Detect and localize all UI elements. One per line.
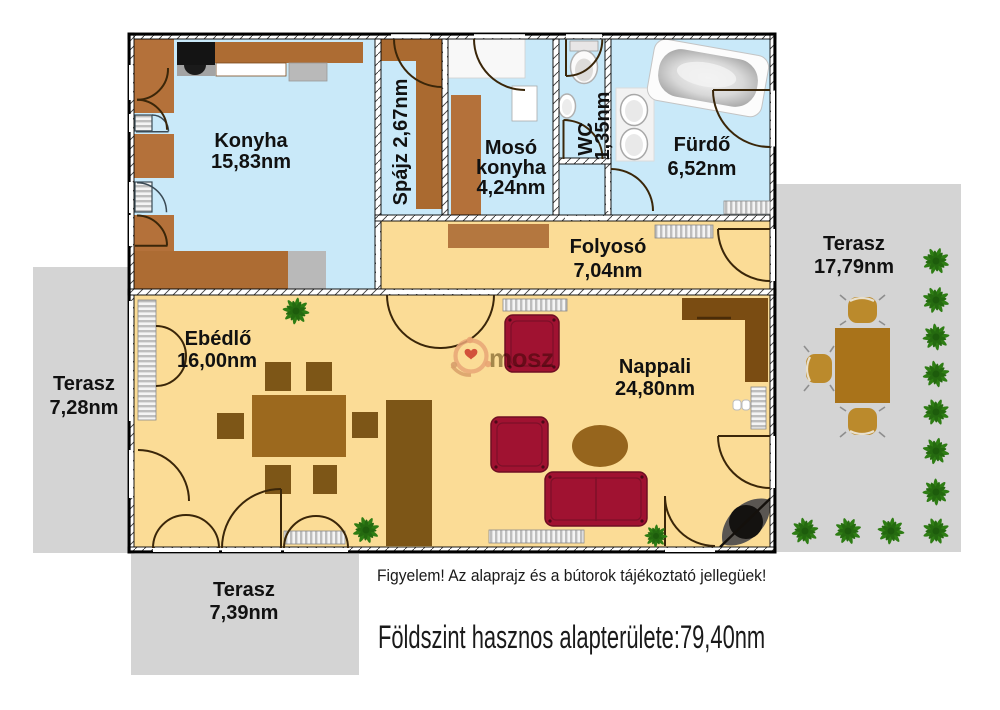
svg-text:7,39nm: 7,39nm <box>210 602 279 624</box>
svg-text:Fürdő: Fürdő <box>674 134 731 156</box>
svg-text:Terasz: Terasz <box>823 233 885 255</box>
svg-text:Terasz: Terasz <box>53 373 115 395</box>
svg-text:1,35nm: 1,35nm <box>592 92 614 161</box>
svg-text:7,04nm: 7,04nm <box>574 260 643 282</box>
svg-text:Ebédlő: Ebédlő <box>185 328 252 350</box>
svg-text:Konyha: Konyha <box>214 130 288 152</box>
svg-text:15,83nm: 15,83nm <box>211 151 291 173</box>
svg-text:Nappali: Nappali <box>619 356 691 378</box>
svg-text:Spájz 2,67nm: Spájz 2,67nm <box>390 79 412 206</box>
svg-text:Földszint hasznos alapterülete: Földszint hasznos alapterülete:79,40nm <box>378 619 765 655</box>
svg-text:17,79nm: 17,79nm <box>814 256 894 278</box>
svg-text:4,24nm: 4,24nm <box>477 177 546 199</box>
svg-text:24,80nm: 24,80nm <box>615 378 695 400</box>
svg-text:6,52nm: 6,52nm <box>668 158 737 180</box>
svg-text:mosz: mosz <box>489 343 554 373</box>
svg-text:Folyosó: Folyosó <box>570 236 647 258</box>
svg-text:Terasz: Terasz <box>213 579 275 601</box>
svg-text:16,00nm: 16,00nm <box>177 350 257 372</box>
svg-text:konyha: konyha <box>476 157 547 179</box>
svg-text:Mosó: Mosó <box>485 137 537 159</box>
svg-text:7,28nm: 7,28nm <box>50 397 119 419</box>
svg-text:Figyelem! Az alaprajz és a bút: Figyelem! Az alaprajz és a bútorok tájék… <box>377 566 766 585</box>
